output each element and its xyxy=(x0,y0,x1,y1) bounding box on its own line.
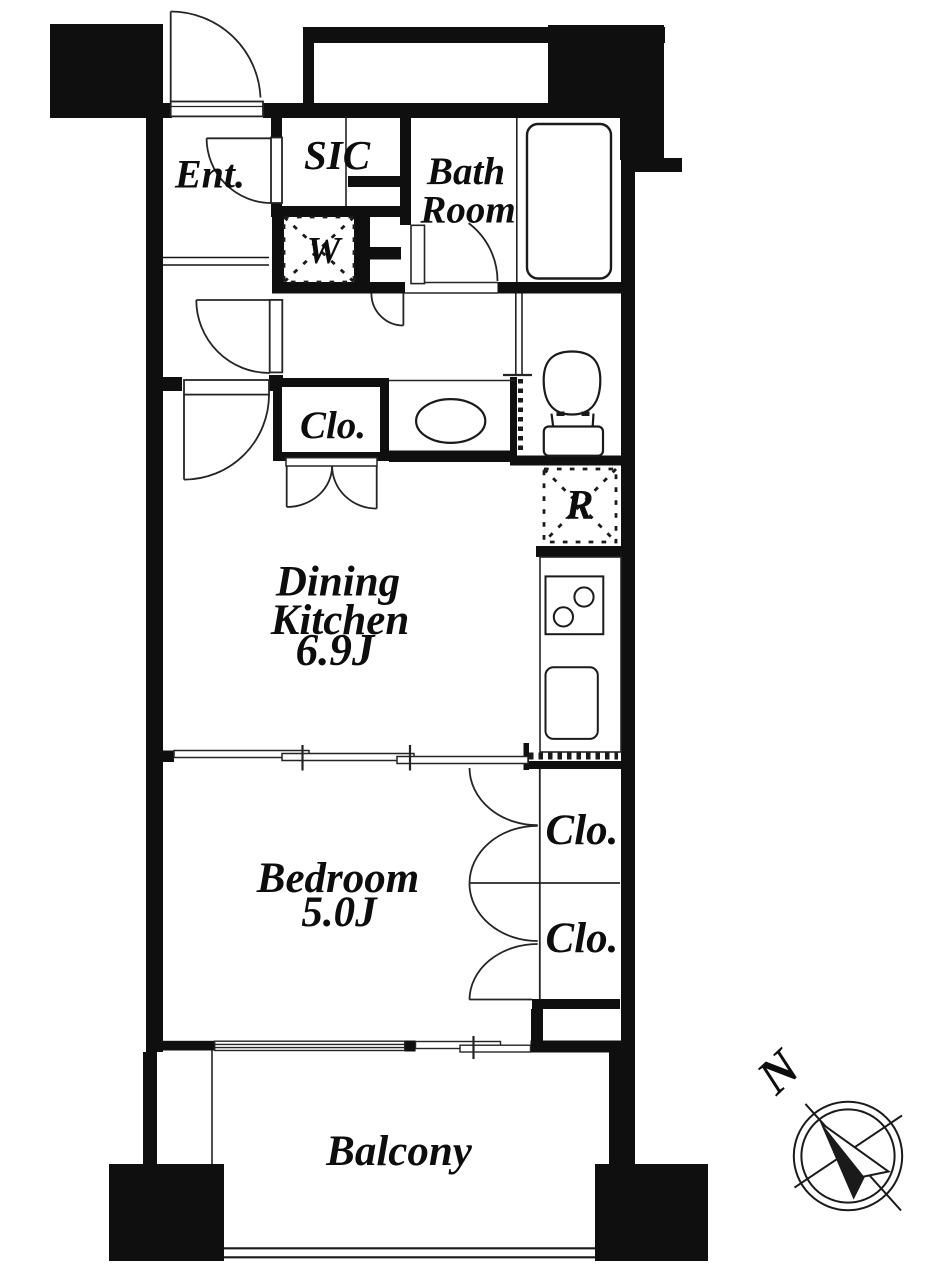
svg-text:Clo.: Clo. xyxy=(546,915,619,962)
svg-text:Room: Room xyxy=(419,189,515,232)
svg-text:Clo.: Clo. xyxy=(300,404,366,447)
svg-text:W: W xyxy=(307,230,344,272)
svg-text:6.9J: 6.9J xyxy=(296,625,376,675)
svg-text:Balcony: Balcony xyxy=(325,1128,473,1175)
svg-text:5.0J: 5.0J xyxy=(301,889,378,936)
svg-text:Clo.: Clo. xyxy=(546,807,619,854)
svg-text:SIC: SIC xyxy=(304,132,371,178)
svg-text:Ent.: Ent. xyxy=(174,152,245,197)
svg-text:R: R xyxy=(564,483,593,529)
svg-text:Bath: Bath xyxy=(426,150,505,193)
